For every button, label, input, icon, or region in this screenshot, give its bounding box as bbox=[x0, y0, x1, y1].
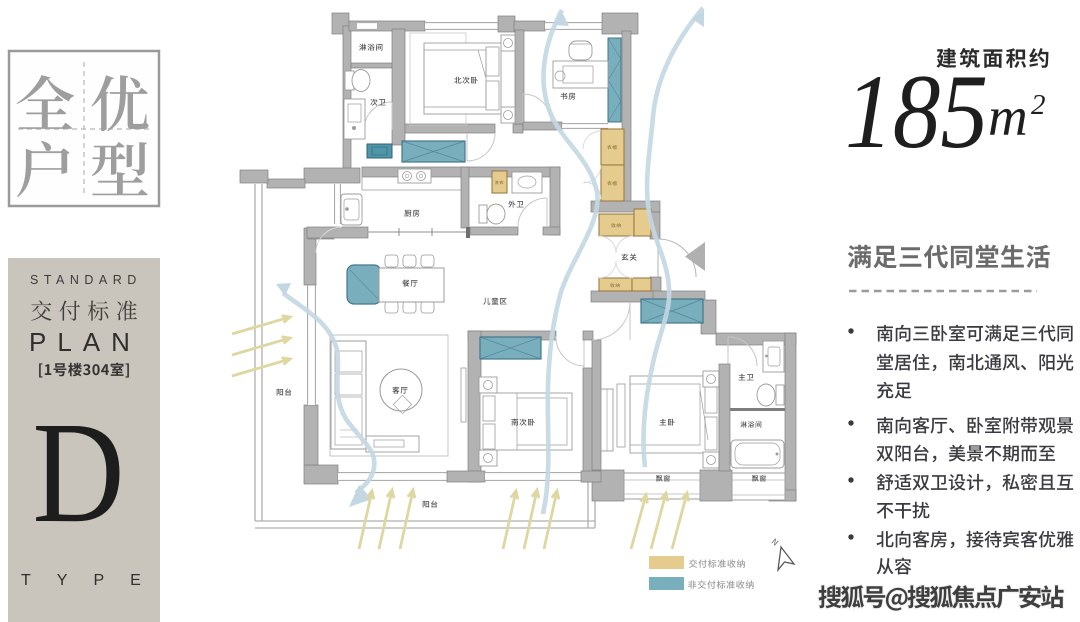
svg-text:2: 2 bbox=[1031, 89, 1046, 121]
svg-text:PLAN: PLAN bbox=[29, 327, 141, 357]
svg-text:TYPE: TYPE bbox=[21, 572, 167, 589]
svg-text:m: m bbox=[988, 86, 1028, 147]
svg-text:STANDARD: STANDARD bbox=[30, 273, 142, 287]
svg-text:D: D bbox=[32, 391, 124, 552]
svg-text:185: 185 bbox=[845, 52, 988, 170]
